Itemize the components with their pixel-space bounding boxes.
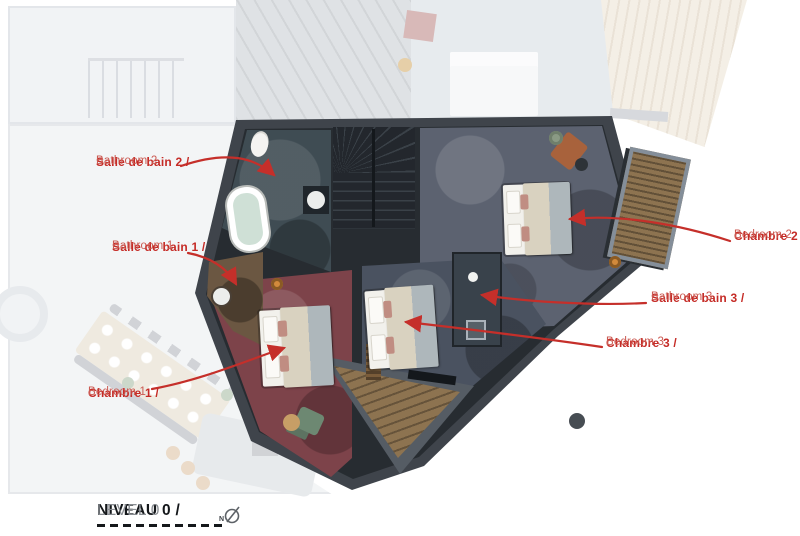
- faded-stool: [181, 461, 195, 475]
- faded-round-stool: [398, 58, 412, 72]
- accent-cushion: [383, 301, 392, 319]
- label-subtitle: Bathroom 3: [651, 291, 712, 305]
- north-compass-icon: N: [216, 504, 242, 528]
- bedroom-2-bed: [503, 183, 571, 255]
- accent-cushion: [521, 226, 529, 242]
- label-subtitle: Bathroom 1: [112, 240, 173, 254]
- level-title-secondary: LEVEL 0: [97, 502, 160, 520]
- faded-upper-middle-room: [236, 0, 412, 120]
- pillow: [264, 352, 281, 379]
- duvet: [385, 285, 439, 369]
- faded-balcony-railing: [88, 58, 184, 118]
- bathroom-3-fixture: [468, 272, 478, 282]
- pillow: [368, 296, 385, 323]
- bedroom-2-chair: [575, 158, 588, 171]
- bathroom-3-shower: [466, 320, 486, 340]
- accent-cushion: [385, 336, 394, 354]
- label-subtitle: Bedroom 2: [734, 229, 792, 243]
- bedroom-2-plant: [549, 131, 563, 145]
- staircase-rail: [372, 129, 375, 227]
- pillow: [262, 316, 279, 343]
- column-dot: [569, 413, 585, 429]
- faded-wood-terrace: [598, 0, 750, 150]
- faded-stool: [166, 446, 180, 460]
- bedroom-1-bed: [259, 307, 333, 387]
- vanity-sink: [303, 186, 329, 214]
- floorplan-canvas: Salle de bain 2 / Bathroom 2 Salle de ba…: [0, 0, 800, 536]
- accent-cushion: [520, 194, 528, 210]
- pillow: [370, 334, 387, 361]
- accent-cushion: [280, 355, 289, 372]
- title-dashed-underline: [97, 524, 223, 527]
- bedroom-1-pouf: [283, 414, 300, 431]
- faded-stool: [196, 476, 210, 490]
- label-subtitle: Bedroom 1: [88, 386, 146, 400]
- faded-plant: [221, 389, 233, 401]
- duvet: [280, 306, 334, 388]
- faded-red-armchair: [403, 10, 437, 42]
- wall-light: [609, 256, 621, 268]
- accent-cushion: [278, 320, 287, 337]
- pillow: [506, 190, 521, 214]
- wall-light: [271, 278, 283, 290]
- pillow: [507, 224, 522, 248]
- duvet: [523, 181, 573, 255]
- bedroom-3-bed: [364, 287, 437, 370]
- bathroom-1-sink: [213, 288, 230, 305]
- faded-bed: [450, 52, 538, 116]
- compass-north-label: N: [219, 516, 224, 523]
- label-subtitle: Bathroom 2: [96, 155, 157, 169]
- label-subtitle: Bedroom 3: [606, 336, 664, 350]
